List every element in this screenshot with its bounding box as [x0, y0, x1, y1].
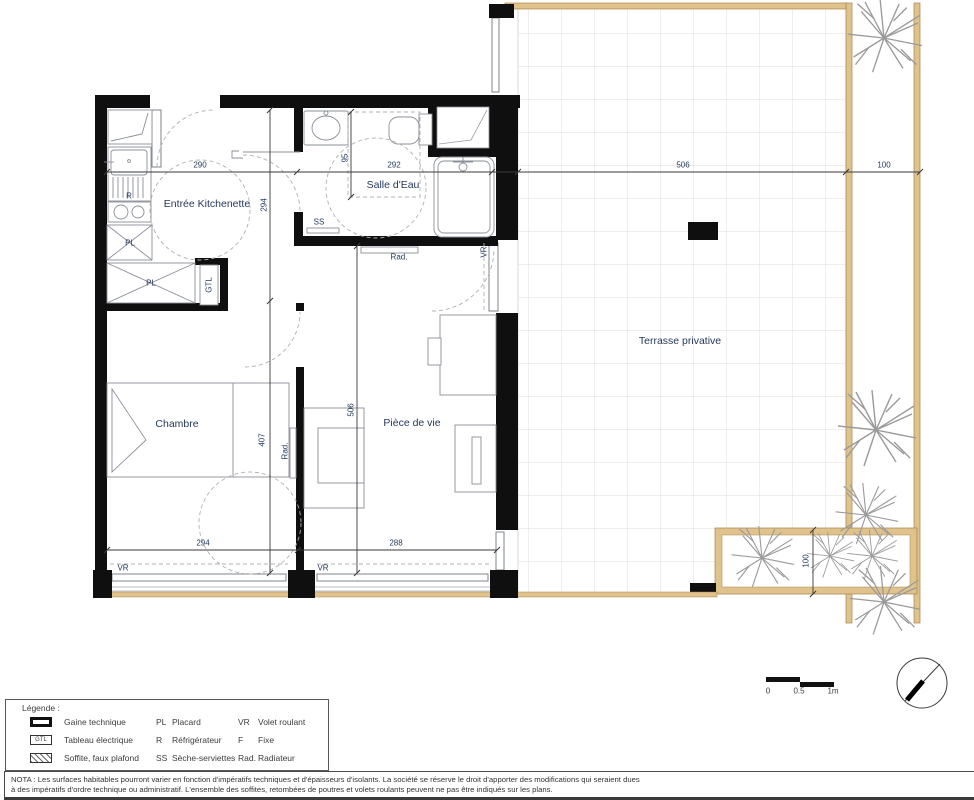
facade-slab-edge: [107, 592, 717, 597]
legend-label: Sèche-serviettes: [172, 753, 235, 763]
room-label-terrasse: Terrasse privative: [639, 335, 721, 347]
tag-rad-hall: Rad.: [391, 253, 408, 262]
legend-abbr: PL: [156, 717, 166, 727]
legend-row-1: Gaine technique PL Placard VR Volet roul…: [6, 716, 328, 730]
legend-row-2: GTL Tableau électrique R Réfrigérateur F…: [6, 734, 328, 748]
room-label-chambre: Chambre: [155, 418, 198, 430]
legend-label: Fixe: [258, 735, 274, 745]
nota-line-1: NOTA : Les surfaces habitables pourront …: [11, 775, 969, 785]
tag-gtl: GTL: [205, 277, 214, 293]
window-fixed: [492, 18, 499, 92]
scale-label-zero: 0: [766, 687, 770, 696]
dim-chambre-width: 294: [196, 539, 209, 548]
closet-niche: [437, 107, 489, 148]
legend-label: Radiateur: [258, 753, 295, 763]
scale-bar: [766, 677, 834, 687]
sofa-unit: [304, 408, 364, 508]
legend-abbr: Rad.: [238, 753, 256, 763]
tableau-electrique-icon: GTL: [30, 735, 52, 745]
chambre-door-swing: [245, 312, 300, 367]
dim-piece-depth: 506: [347, 403, 356, 416]
dim-entree-depth: 294: [260, 198, 269, 211]
radiator-chambre: [290, 428, 296, 478]
tag-towel-dryer: SS: [314, 218, 325, 227]
washbasin: [304, 111, 348, 145]
nota-line-2: à des impératifs d'ordre technique ou ad…: [11, 785, 969, 795]
terrace-top-edge: [505, 3, 848, 9]
tag-vr-piece: VR: [317, 564, 328, 573]
tag-vr-right: VR: [480, 246, 489, 257]
window-chambre: [112, 574, 286, 581]
nota-box: NOTA : Les surfaces habitables pourront …: [4, 771, 974, 800]
clearance-circle-chambre: [199, 472, 301, 574]
gaine-technique-icon: [30, 717, 52, 727]
legend-label: Soffite, faux plafond: [64, 753, 139, 763]
scale-label-one: 1m: [827, 687, 838, 696]
fridge: [108, 110, 152, 144]
legend-abbr: SS: [156, 753, 167, 763]
toilet: [389, 114, 432, 145]
desk-and-chair: [428, 315, 496, 395]
bathroom-door-swing: [243, 155, 300, 212]
floor-plan-drawing: [0, 0, 974, 800]
entrance-door-leaf: [152, 110, 161, 167]
legend-label: Placard: [172, 717, 201, 727]
tag-pl-lower: PL: [146, 279, 156, 288]
tag-fridge: R: [126, 192, 132, 201]
legend-abbr: R: [156, 735, 162, 745]
bathroom-door-handle: [232, 151, 243, 158]
legend-label: Réfrigérateur: [172, 735, 222, 745]
dim-soffit-depth: 95: [341, 154, 350, 163]
dim-salle-eau-width: 292: [387, 161, 400, 170]
floor-plan-page: Entrée Kitchenette Salle d'Eau Chambre P…: [0, 0, 974, 800]
dim-piece-width: 288: [389, 539, 402, 548]
legend-title: Légende :: [22, 703, 60, 713]
terrace-door-swing: [432, 249, 494, 311]
radiator-hall: [361, 247, 418, 253]
room-label-piece-de-vie: Pièce de vie: [383, 417, 440, 429]
legend-label: Tableau électrique: [64, 735, 133, 745]
entrance-door-swing: [157, 110, 214, 167]
legend-row-3: Soffite, faux plafond SS Sèche-serviette…: [6, 752, 328, 766]
dim-entree-width: 290: [193, 161, 206, 170]
shower: [434, 157, 494, 237]
scale-label-half: 0.5: [793, 687, 804, 696]
window-piece-de-vie: [317, 574, 488, 581]
dim-terrasse-width: 506: [676, 161, 689, 170]
room-label-entree: Entrée Kitchenette: [164, 198, 250, 210]
dim-bed-height: 100: [802, 554, 811, 567]
towel-dryer: [307, 228, 339, 233]
window-right-lower: [496, 532, 504, 570]
legend-abbr: VR: [238, 717, 250, 727]
terrace-tile-grid: [518, 8, 846, 594]
clearance-circle-entree: [150, 160, 250, 260]
bed: [107, 383, 289, 477]
tv-sideboard: [455, 425, 496, 492]
dim-chambre-depth: 407: [258, 433, 267, 446]
tag-rad-chambre: Rad.: [281, 443, 290, 460]
legend-abbr: F: [238, 735, 243, 745]
tag-pl-upper: PL: [125, 239, 135, 248]
north-arrow: [897, 658, 947, 708]
legend-box: Légende : Gaine technique PL Placard VR …: [5, 699, 329, 771]
tag-vr-chambre: VR: [117, 564, 128, 573]
room-label-salle-eau: Salle d'Eau: [367, 179, 420, 191]
terrace-duct-block: [688, 222, 718, 240]
dim-strip-width: 100: [877, 161, 890, 170]
soffite-hatch-icon: [30, 753, 52, 763]
cooktop: [108, 202, 151, 222]
legend-label: Volet roulant: [258, 717, 305, 727]
legend-label: Gaine technique: [64, 717, 126, 727]
